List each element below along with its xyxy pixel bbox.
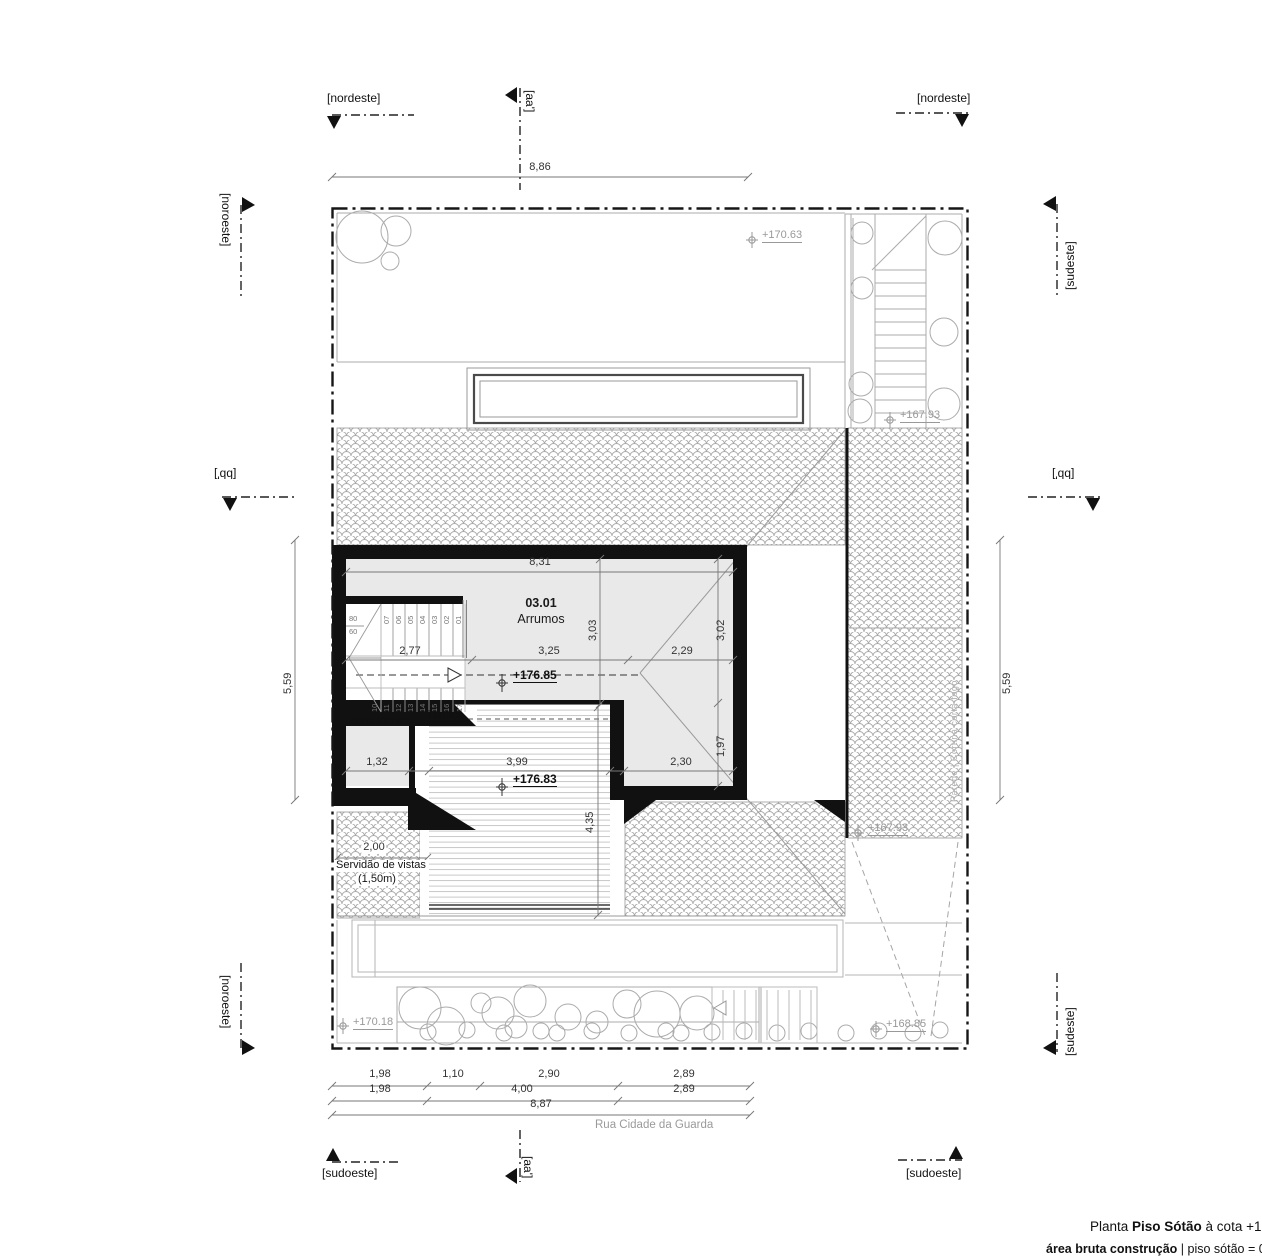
tread-06: 06 xyxy=(395,616,403,624)
section-label-sudeste-top: [sudeste] xyxy=(1064,241,1077,290)
garden-stairs xyxy=(712,987,817,1043)
dim-servidao: 2,00 xyxy=(361,842,386,854)
level-terrace-floor: +176.83 xyxy=(513,773,557,787)
section-label-aa-top: [aa'] xyxy=(523,90,536,112)
stair-width-80: 80 xyxy=(349,615,357,623)
dim-chain2-b: 4,00 xyxy=(511,1084,532,1096)
floor-plan-canvas: [nordeste] [aa'] [nordeste] [noroeste] [… xyxy=(0,0,1262,1256)
room-name: Arrumos xyxy=(517,613,564,626)
title-line1: Planta Piso Sótão à cota +178 xyxy=(1090,1220,1262,1234)
title-line1-suffix: à cota +178 xyxy=(1202,1219,1262,1234)
level-garden-south: +168.85 xyxy=(886,1019,926,1032)
section-label-bb-right: [bb'] xyxy=(1052,468,1074,481)
section-label-nordeste-tl: [nordeste] xyxy=(327,92,380,105)
tread-14: 14 xyxy=(419,704,427,712)
dim-site-height-right: 5,59 xyxy=(1002,673,1014,694)
dim-chain2-c: 2,89 xyxy=(673,1084,694,1096)
plan-drawing xyxy=(0,0,1262,1256)
tread-07: 07 xyxy=(383,616,391,624)
dim-room-depth-right: 3,02 xyxy=(716,620,728,641)
section-label-sudoeste-br: [sudoeste] xyxy=(906,1167,961,1180)
section-label-noroeste-top: [noroeste] xyxy=(219,193,232,246)
tread-15: 15 xyxy=(431,704,439,712)
street-name: Rua Cidade da Guarda xyxy=(595,1119,713,1131)
title-line2-area: área bruta construção xyxy=(1046,1242,1177,1256)
level-garden-north: +170.63 xyxy=(762,230,802,243)
title-line1-name: Piso Sótão xyxy=(1132,1219,1202,1234)
dim-chain1-c: 2,90 xyxy=(538,1069,559,1081)
section-label-sudoeste-bl: [sudoeste] xyxy=(322,1167,377,1180)
dim-site-height-left: 5,59 xyxy=(283,673,295,694)
tread-16: 16 xyxy=(443,704,451,712)
tread-10: 10 xyxy=(371,704,379,712)
level-roof-east: +167.93 xyxy=(868,823,908,836)
dim-zona-width: 1,32 xyxy=(366,757,387,769)
stair-width-60: 60 xyxy=(349,628,357,636)
section-label-aa-bottom: [aa'] xyxy=(521,1156,534,1178)
tread-12: 12 xyxy=(395,704,403,712)
tread-13: 13 xyxy=(407,704,415,712)
tread-11: 11 xyxy=(383,704,391,712)
section-label-nordeste-tr: [nordeste] xyxy=(917,92,970,105)
level-stairs-north: +167.93 xyxy=(900,410,940,423)
dim-chain1-b: 1,10 xyxy=(442,1069,463,1081)
dim-site-width: 8,86 xyxy=(529,162,550,174)
dim-chain-total: 8,87 xyxy=(530,1099,551,1111)
title-line1-prefix: Planta xyxy=(1090,1219,1132,1234)
section-label-bb-left: [bb'] xyxy=(214,468,236,481)
dim-chain1-d: 2,89 xyxy=(673,1069,694,1081)
note-parede-corta-fogo: Parede | Cortina corta-fogo xyxy=(950,680,959,802)
dim-terraco-width: 3,99 xyxy=(506,757,527,769)
terrace-decking xyxy=(429,707,610,915)
tread-03: 03 xyxy=(431,616,439,624)
dim-chain2-a: 1,98 xyxy=(369,1084,390,1096)
dim-chain1-a: 1,98 xyxy=(369,1069,390,1081)
room-zona-tecnica: Zona técnica xyxy=(349,716,412,728)
dim-room-right: 2,29 xyxy=(671,646,692,658)
lower-garden xyxy=(337,916,962,1045)
title-line2: área bruta construção | piso sótão = 03 xyxy=(1046,1243,1262,1256)
dim-roof-hip: 1,97 xyxy=(716,736,728,757)
garden-north xyxy=(336,211,962,430)
title-line2-suffix: | piso sótão = 03 xyxy=(1177,1242,1262,1256)
section-label-noroeste-bottom: [noroeste] xyxy=(219,975,232,1028)
level-garden-west: +170.18 xyxy=(353,1017,393,1030)
ramp-lines xyxy=(852,842,958,1036)
dim-terraco-depth: 4,35 xyxy=(585,812,597,833)
dim-room-depth-mid: 3,03 xyxy=(588,620,600,641)
room-number: 03.01 xyxy=(525,597,556,610)
tread-01: 01 xyxy=(455,616,463,624)
tread-04: 04 xyxy=(419,616,427,624)
tread-05: 05 xyxy=(407,616,415,624)
dim-room-mid: 3,25 xyxy=(538,646,559,658)
dim-stair-width: 2,77 xyxy=(399,646,420,658)
dim-right-wing: 2,30 xyxy=(670,757,691,769)
tread-02: 02 xyxy=(443,616,451,624)
note-servidao-2: (1,50m) xyxy=(356,874,398,886)
dim-room-width: 8,31 xyxy=(529,557,550,569)
tread-17: 17 xyxy=(456,704,464,712)
level-attic-floor: +176.85 xyxy=(513,669,557,683)
note-servidao-1: Servidão de vistas xyxy=(334,860,428,872)
section-label-sudeste-bottom: [sudeste] xyxy=(1064,1007,1077,1056)
